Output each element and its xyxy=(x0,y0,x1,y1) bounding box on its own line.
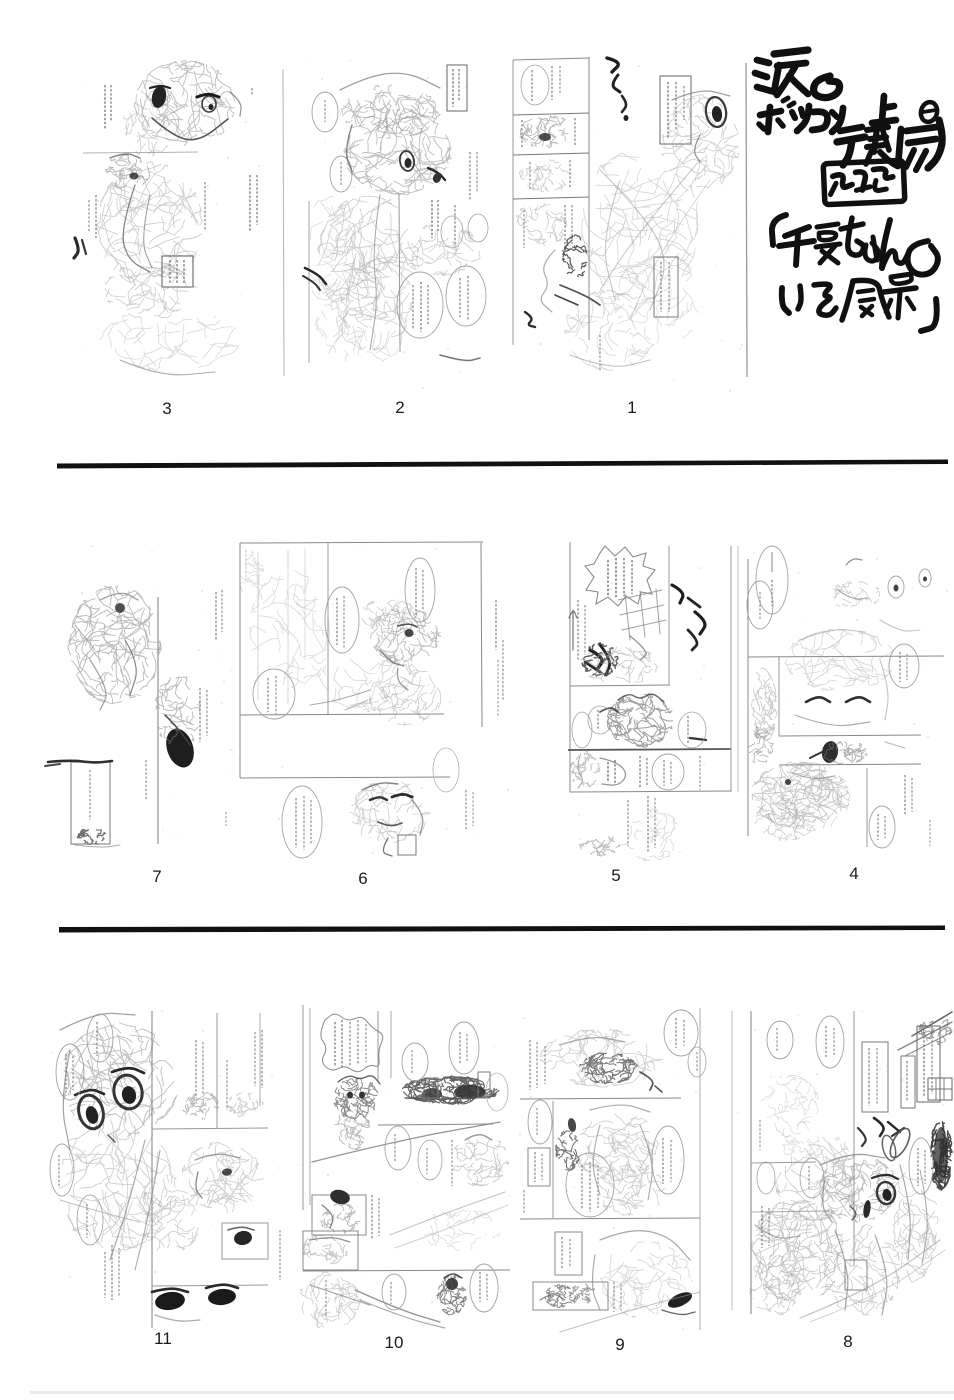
svg-text:1: 1 xyxy=(627,398,636,417)
svg-text:2: 2 xyxy=(395,398,404,417)
svg-text:11: 11 xyxy=(154,1329,172,1348)
svg-text:6: 6 xyxy=(358,869,367,888)
svg-text:8: 8 xyxy=(843,1332,852,1351)
svg-text:3: 3 xyxy=(162,399,171,418)
svg-text:10: 10 xyxy=(385,1333,404,1352)
svg-text:5: 5 xyxy=(611,866,620,885)
svg-text:9: 9 xyxy=(615,1335,624,1354)
svg-text:7: 7 xyxy=(152,867,161,886)
svg-text:4: 4 xyxy=(849,864,858,883)
